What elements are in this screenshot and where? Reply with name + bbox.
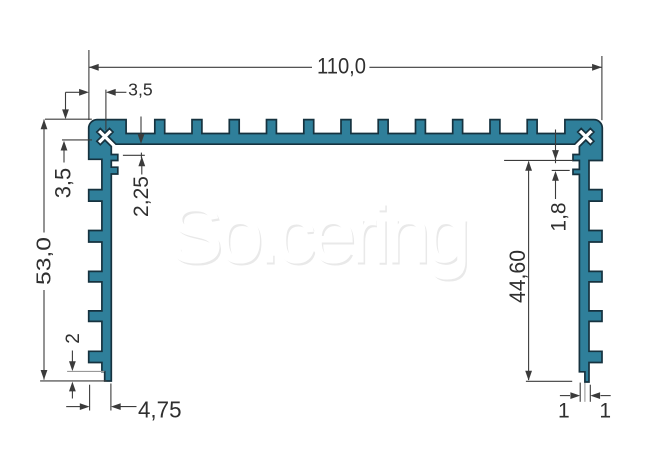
svg-text:2: 2 [63,333,84,344]
svg-text:1: 1 [558,400,570,423]
svg-text:44,60: 44,60 [505,250,530,303]
svg-text:2,25: 2,25 [130,176,153,217]
svg-text:3,5: 3,5 [128,80,153,100]
svg-text:4,75: 4,75 [138,397,182,423]
svg-text:1: 1 [599,400,611,423]
svg-text:53,0: 53,0 [34,237,56,285]
svg-text:1,8: 1,8 [548,202,571,231]
svg-text:110,0: 110,0 [317,54,366,79]
svg-text:So.cering: So.cering [168,189,466,280]
svg-text:3,5: 3,5 [50,168,75,199]
